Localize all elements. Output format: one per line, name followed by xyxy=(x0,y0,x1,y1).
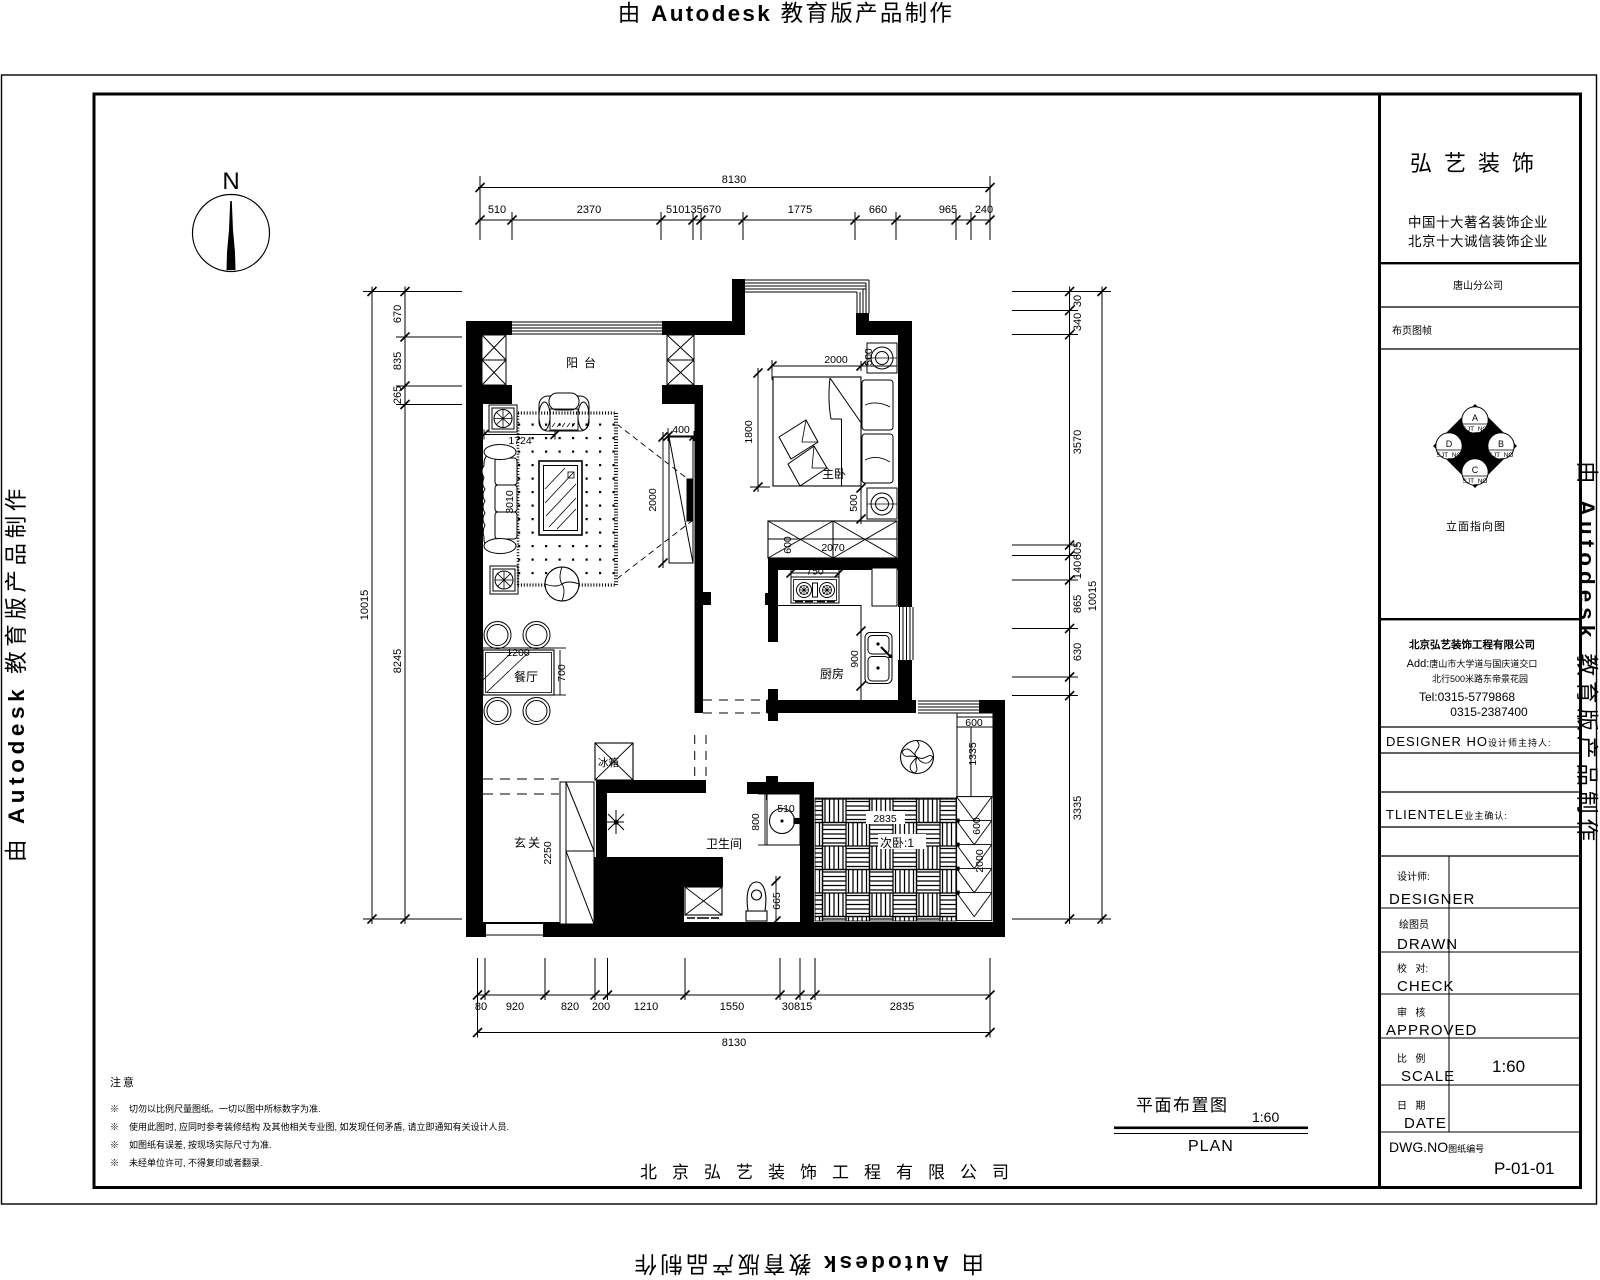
svg-text:APPROVED: APPROVED xyxy=(1386,1022,1477,1039)
svg-text:唐山分公司: 唐山分公司 xyxy=(1453,279,1503,292)
svg-text:600: 600 xyxy=(965,717,983,729)
svg-text:8245: 8245 xyxy=(392,649,404,673)
svg-text:8130: 8130 xyxy=(722,174,746,186)
svg-text:8130: 8130 xyxy=(722,1037,746,1049)
svg-text:965: 965 xyxy=(939,204,957,216)
svg-text:1210: 1210 xyxy=(634,1001,658,1013)
svg-text:※ 使用此图时, 应同时参考装修结构 及其他相关专业图: ※ 使用此图时, 应同时参考装修结构 及其他相关专业图, 如发现任何矛盾, 请立… xyxy=(110,1121,509,1132)
svg-text:1200: 1200 xyxy=(506,647,530,659)
svg-text:次卧:1: 次卧:1 xyxy=(880,836,914,850)
svg-text:北京弘艺装饰工程有限公司: 北京弘艺装饰工程有限公司 xyxy=(1409,638,1535,651)
svg-text:660: 660 xyxy=(869,204,887,216)
svg-text:800: 800 xyxy=(750,813,762,831)
svg-text:600: 600 xyxy=(782,536,794,554)
svg-text:1:60: 1:60 xyxy=(1492,1057,1525,1076)
svg-text:600: 600 xyxy=(971,817,983,835)
svg-text:CHECK: CHECK xyxy=(1397,978,1455,995)
svg-text:340: 340 xyxy=(1072,313,1084,331)
svg-text:立面指向图: 立面指向图 xyxy=(1446,519,1506,533)
svg-text:3010: 3010 xyxy=(504,490,516,514)
svg-text:2835: 2835 xyxy=(873,813,897,825)
svg-text:10015: 10015 xyxy=(1087,581,1099,612)
svg-text:1800: 1800 xyxy=(743,420,755,444)
svg-text:2000: 2000 xyxy=(974,849,986,873)
svg-text:Tel:0315-5779868: Tel:0315-5779868 xyxy=(1419,690,1515,704)
svg-text:DESIGNER: DESIGNER xyxy=(1389,891,1475,908)
svg-text:※ 如图纸有误差, 按现场实际尺寸为准.: ※ 如图纸有误差, 按现场实际尺寸为准. xyxy=(110,1139,272,1150)
svg-text:600: 600 xyxy=(694,867,712,879)
svg-text:510135670: 510135670 xyxy=(666,204,721,216)
svg-text:400: 400 xyxy=(672,424,690,436)
svg-text:30: 30 xyxy=(1072,295,1084,307)
svg-text:北行500米路东帝景花园: 北行500米路东帝景花园 xyxy=(1432,673,1528,684)
svg-text:C: C xyxy=(1472,465,1479,475)
svg-text:D: D xyxy=(1446,439,1453,449)
svg-text:北京十大诚信装饰企业: 北京十大诚信装饰企业 xyxy=(1408,233,1548,249)
svg-text:750: 750 xyxy=(806,566,824,578)
svg-text:布页图帧: 布页图帧 xyxy=(1392,324,1432,337)
svg-text:DATE: DATE xyxy=(1404,1115,1447,1132)
svg-text:500: 500 xyxy=(848,494,860,512)
svg-text:2370: 2370 xyxy=(577,204,601,216)
svg-text:绘图员: 绘图员 xyxy=(1399,918,1429,931)
svg-text:3570: 3570 xyxy=(1072,430,1084,454)
svg-text:由 Autodesk 教育版产品制作: 由 Autodesk 教育版产品制作 xyxy=(618,1,954,26)
svg-text:N: N xyxy=(222,168,239,195)
svg-text:500: 500 xyxy=(863,348,875,366)
svg-text:由 Autodesk 教育版产品制作: 由 Autodesk 教育版产品制作 xyxy=(631,1251,984,1276)
svg-text:※ 切勿以比例尺量图纸。一切以图中所标数字为准.: ※ 切勿以比例尺量图纸。一切以图中所标数字为准. xyxy=(110,1103,321,1114)
svg-text:平面布置图: 平面布置图 xyxy=(1136,1096,1229,1115)
svg-text:※ 未经单位许可, 不得复印或者翻录.: ※ 未经单位许可, 不得复印或者翻录. xyxy=(110,1157,263,1168)
svg-text:865: 865 xyxy=(1072,595,1084,613)
svg-text:由 Autodesk 教育版产品制作: 由 Autodesk 教育版产品制作 xyxy=(1574,461,1599,846)
svg-text:2835: 2835 xyxy=(890,1001,914,1013)
svg-text:阳台: 阳台 xyxy=(566,355,602,370)
svg-text:2000: 2000 xyxy=(824,354,848,366)
svg-text:设计师:: 设计师: xyxy=(1397,870,1430,883)
svg-text:日 期: 日 期 xyxy=(1397,1100,1425,1112)
svg-text:弘艺装饰: 弘艺装饰 xyxy=(1410,151,1546,176)
svg-text:920: 920 xyxy=(506,1001,524,1013)
svg-text:30815: 30815 xyxy=(782,1001,813,1013)
svg-text:主卧: 主卧 xyxy=(822,467,846,481)
svg-text:900: 900 xyxy=(849,650,861,668)
svg-text:Add:唐山市大学道与国庆道交口: Add:唐山市大学道与国庆道交口 xyxy=(1407,658,1538,670)
svg-text:审 核: 审 核 xyxy=(1397,1006,1425,1019)
svg-text:SJT_NO: SJT_NO xyxy=(1463,426,1488,433)
svg-text:1:60: 1:60 xyxy=(1252,1109,1279,1125)
svg-text:由 Autodesk 教育版产品制作: 由 Autodesk 教育版产品制作 xyxy=(4,484,29,862)
svg-text:B: B xyxy=(1498,439,1504,449)
svg-text:820: 820 xyxy=(561,1001,579,1013)
svg-text:265: 265 xyxy=(392,386,404,404)
svg-text:1335: 1335 xyxy=(967,742,979,766)
svg-text:P-01-01: P-01-01 xyxy=(1494,1159,1554,1178)
svg-text:510: 510 xyxy=(488,204,506,216)
svg-text:670: 670 xyxy=(392,305,404,323)
svg-text:835: 835 xyxy=(392,352,404,370)
svg-text:510: 510 xyxy=(777,803,795,815)
svg-text:665: 665 xyxy=(771,892,783,910)
svg-text:PLAN: PLAN xyxy=(1188,1138,1234,1155)
svg-text:玄关: 玄关 xyxy=(514,835,542,850)
svg-text:SJT_NO: SJT_NO xyxy=(1437,452,1462,459)
svg-text:DRAWN: DRAWN xyxy=(1397,936,1458,953)
svg-text:0315-2387400: 0315-2387400 xyxy=(1450,705,1528,719)
svg-text:北京弘艺装饰工程有限公司: 北京弘艺装饰工程有限公司 xyxy=(640,1163,1024,1182)
svg-text:卫生间: 卫生间 xyxy=(706,837,742,851)
svg-text:SJT_NO: SJT_NO xyxy=(1489,452,1514,459)
svg-text:餐厅: 餐厅 xyxy=(514,669,538,684)
svg-text:1724: 1724 xyxy=(508,435,532,447)
svg-text:厨房: 厨房 xyxy=(820,666,844,681)
svg-text:630: 630 xyxy=(1072,643,1084,661)
svg-text:中国十大著名装饰企业: 中国十大著名装饰企业 xyxy=(1408,214,1548,230)
svg-text:80: 80 xyxy=(475,1001,487,1013)
svg-text:注意: 注意 xyxy=(110,1075,136,1089)
svg-text:605: 605 xyxy=(1072,542,1084,560)
svg-text:2070: 2070 xyxy=(821,542,845,554)
svg-text:SJT_NO: SJT_NO xyxy=(1463,478,1488,485)
svg-text:1775: 1775 xyxy=(788,204,812,216)
svg-text:2000: 2000 xyxy=(647,488,659,512)
svg-text:700: 700 xyxy=(556,664,568,682)
svg-text:比 例: 比 例 xyxy=(1397,1052,1425,1065)
svg-text:240: 240 xyxy=(975,204,993,216)
svg-text:10015: 10015 xyxy=(359,590,371,621)
svg-text:2250: 2250 xyxy=(542,841,554,865)
svg-text:1550: 1550 xyxy=(720,1001,744,1013)
svg-text:A: A xyxy=(1472,413,1478,423)
svg-text:校 对:: 校 对: xyxy=(1397,962,1428,975)
svg-text:140: 140 xyxy=(1072,561,1084,579)
svg-text:3335: 3335 xyxy=(1072,796,1084,820)
svg-text:冰箱: 冰箱 xyxy=(598,756,619,769)
svg-text:SCALE: SCALE xyxy=(1401,1068,1455,1085)
svg-text:200: 200 xyxy=(592,1001,610,1013)
